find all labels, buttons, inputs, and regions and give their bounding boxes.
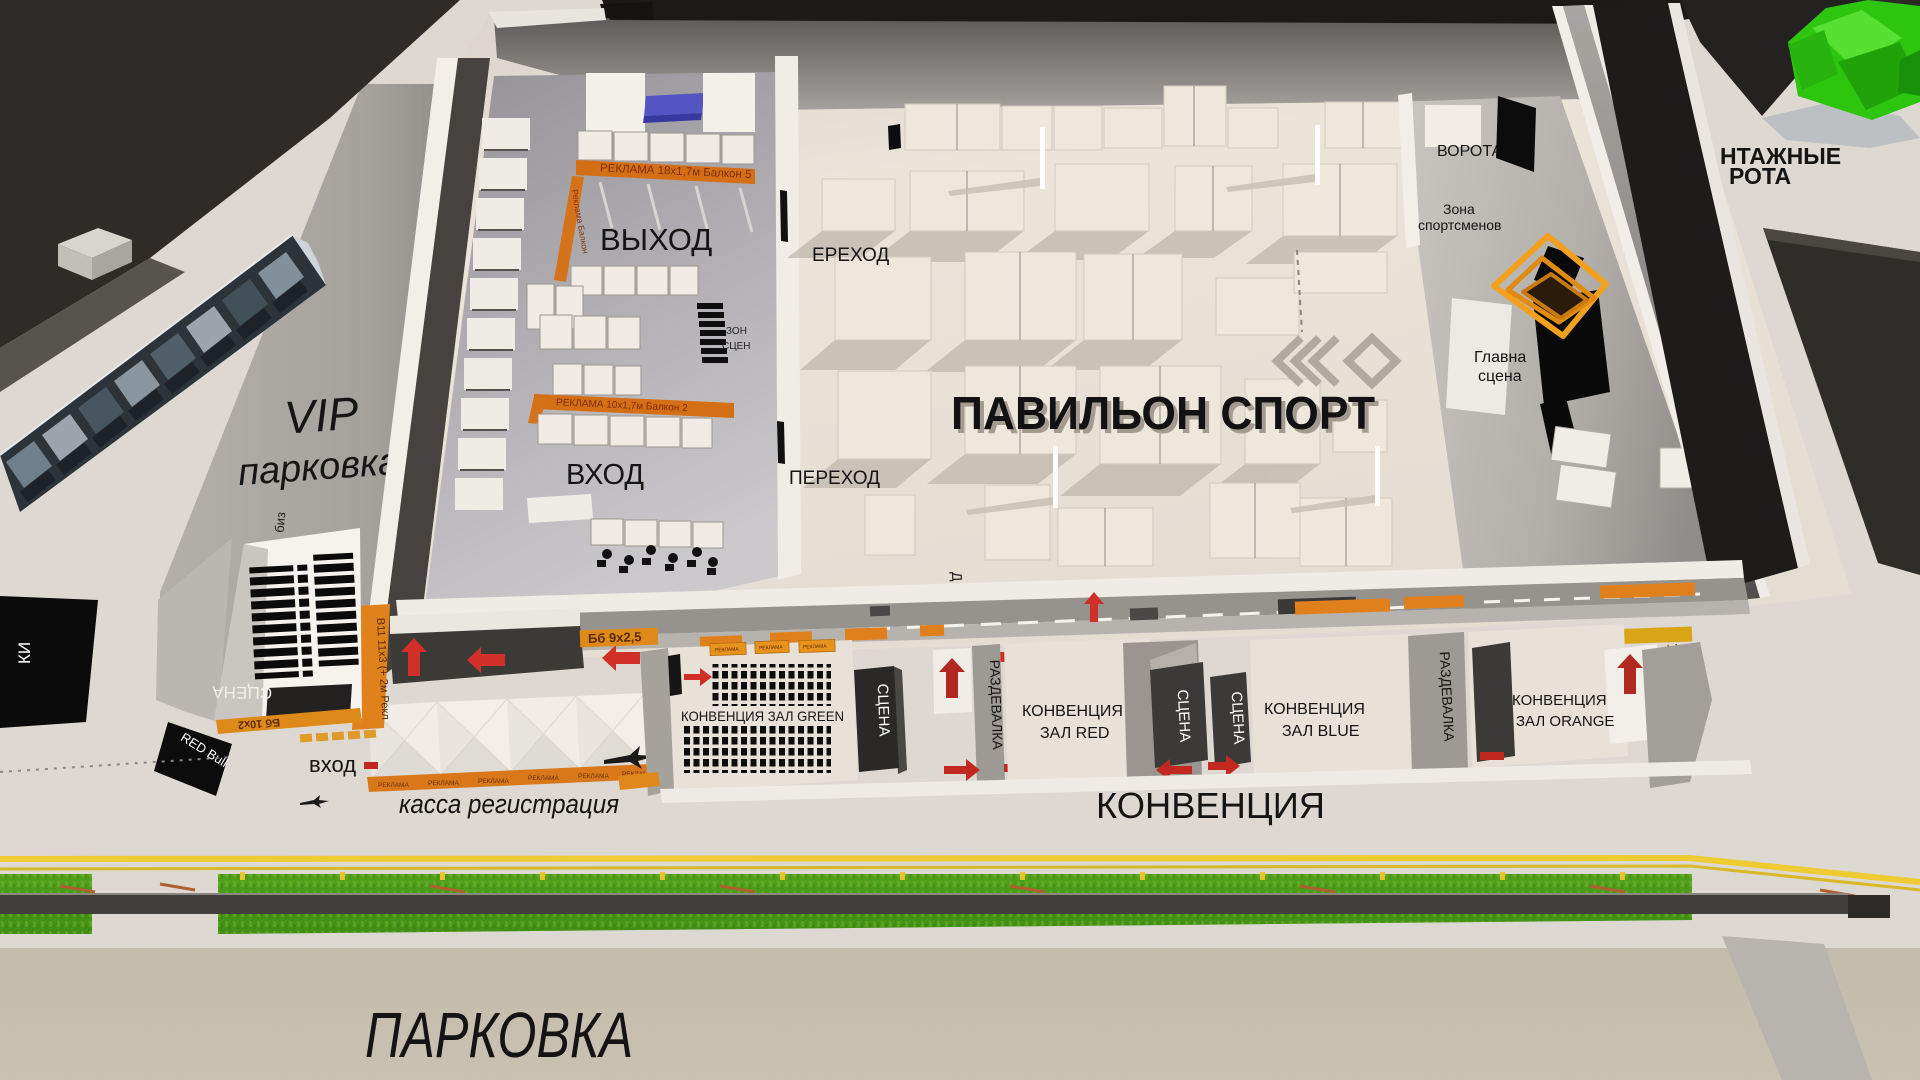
svg-text:ВЫХОД: ВЫХОД	[600, 222, 712, 257]
svg-text:Д: Д	[949, 572, 965, 583]
svg-text:ЗАЛ ORANGE: ЗАЛ ORANGE	[1516, 713, 1614, 730]
svg-text:СЦЕНА: СЦЕНА	[211, 682, 272, 702]
svg-text:СЦЕНА: СЦЕНА	[1174, 689, 1194, 743]
svg-text:Зона: Зона	[1443, 201, 1475, 217]
svg-text:ПАВИЛЬОН СПОРТ: ПАВИЛЬОН СПОРТ	[951, 387, 1375, 439]
svg-text:РАЗДЕВАЛКА: РАЗДЕВАЛКА	[987, 659, 1006, 750]
svg-text:РЕКЛАМА: РЕКЛАМА	[578, 773, 609, 780]
svg-text:ЗОН: ЗОН	[726, 326, 747, 337]
svg-text:касса регистрация: касса регистрация	[399, 789, 619, 819]
svg-text:КОНВЕНЦИЯ: КОНВЕНЦИЯ	[1096, 785, 1325, 826]
svg-text:ЗАЛ BLUE: ЗАЛ BLUE	[1282, 723, 1359, 740]
svg-text:ЕРЕХОД: ЕРЕХОД	[812, 245, 889, 266]
svg-text:СЦЕНА: СЦЕНА	[1228, 691, 1248, 745]
svg-text:VIP: VIP	[283, 387, 361, 444]
svg-text:КОНВЕНЦИЯ: КОНВЕНЦИЯ	[1022, 703, 1123, 720]
svg-text:СЦЕНА: СЦЕНА	[874, 683, 893, 736]
svg-text:КОНВЕНЦИЯ ЗАЛ GREEN: КОНВЕНЦИЯ ЗАЛ GREEN	[681, 708, 844, 724]
svg-text:ПЕРЕХОД: ПЕРЕХОД	[789, 468, 880, 489]
svg-text:вход: вход	[309, 752, 356, 777]
svg-text:ВХОД: ВХОД	[566, 459, 644, 491]
svg-text:КОНВЕНЦИЯ: КОНВЕНЦИЯ	[1512, 692, 1607, 709]
svg-text:РЕКЛАМА: РЕКЛАМА	[378, 782, 409, 789]
svg-text:биз: биз	[272, 511, 289, 533]
svg-text:КОНВЕНЦИЯ: КОНВЕНЦИЯ	[1264, 701, 1365, 718]
svg-text:Главна: Главна	[1474, 349, 1526, 366]
svg-text:КИ: КИ	[15, 642, 34, 664]
svg-text:ВОРОТА: ВОРОТА	[1437, 143, 1503, 160]
svg-text:РОТА: РОТА	[1729, 163, 1791, 189]
svg-text:ЗАЛ RED: ЗАЛ RED	[1040, 725, 1109, 742]
svg-text:РЕКЛАМА: РЕКЛАМА	[478, 778, 509, 785]
svg-text:сцена: сцена	[1478, 368, 1522, 385]
svg-text:РЕКЛАМА: РЕКЛАМА	[803, 644, 828, 651]
svg-text:СЦЕН: СЦЕН	[722, 341, 751, 352]
svg-text:РЕКЛАМА: РЕКЛАМА	[759, 645, 784, 652]
svg-text:РЕКЛАМА: РЕКЛАМА	[528, 775, 559, 782]
svg-text:РЕКЛАМА: РЕКЛАМА	[715, 647, 740, 654]
svg-text:ПАРКОВКА: ПАРКОВКА	[365, 1000, 633, 1071]
svg-text:РЕКЛАМА: РЕКЛАМА	[428, 780, 459, 787]
svg-text:спортсменов: спортсменов	[1418, 217, 1501, 233]
svg-text:Бб 9х2,5: Бб 9х2,5	[588, 629, 642, 646]
